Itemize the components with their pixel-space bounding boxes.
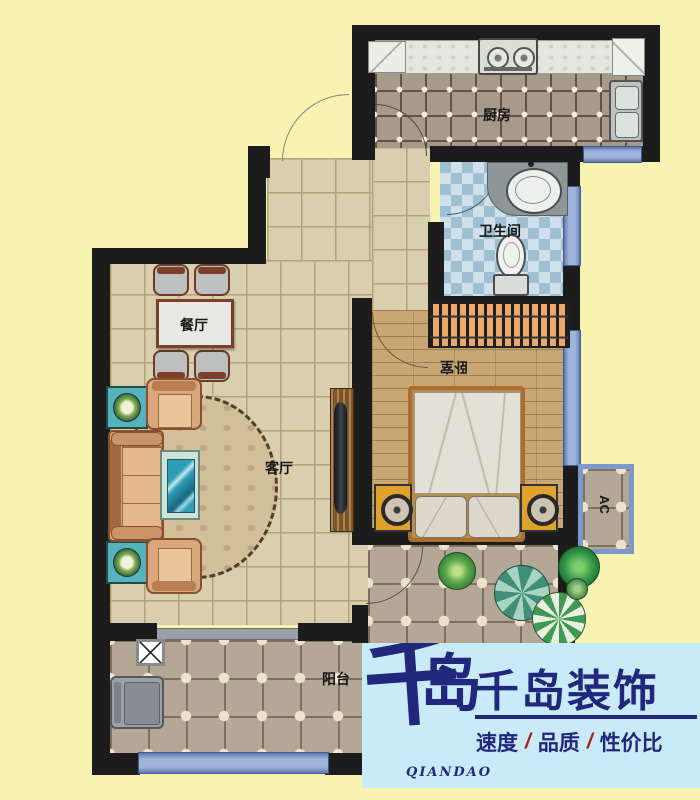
- bathroom-sink-basin: [506, 168, 562, 214]
- entry-door-arc: [282, 94, 349, 161]
- stove-control-panel: [484, 67, 532, 71]
- logo-rule: [475, 715, 697, 719]
- kitchen-stove: [478, 38, 538, 75]
- wall-balcony-bottom-left: [92, 753, 140, 775]
- coffee-table-glass: [167, 459, 195, 513]
- pillow-left: [415, 496, 467, 538]
- wardrobe: [428, 302, 570, 348]
- logo-tagline: 速度 / 品质 / 性价比: [476, 727, 663, 757]
- armchair-back: [152, 381, 196, 391]
- armchair-cushion: [158, 548, 192, 582]
- tagline-slash-icon: /: [525, 730, 531, 754]
- stove-burner-right: [513, 47, 535, 69]
- coffee-table: [160, 450, 200, 520]
- sink-basin-top: [615, 86, 639, 110]
- dining-chair: [194, 264, 230, 296]
- kitchen-label: 厨房: [483, 105, 511, 125]
- company-logo: 千 岛 QIANDAO 千岛装饰 速度 / 品质 / 性价比: [362, 643, 700, 788]
- hallway-floor: [372, 147, 430, 310]
- dining-chair: [153, 264, 189, 296]
- sofa-back: [110, 438, 121, 534]
- kitchen-cutting-board: [368, 41, 406, 73]
- nightstand-lamp: [381, 494, 413, 526]
- nightstand-left: [374, 484, 412, 532]
- washing-machine-panel: [114, 682, 121, 723]
- kitchen-right-counter: [612, 38, 645, 76]
- wall-kitchen-right: [643, 25, 660, 162]
- bathroom-vanity: [487, 162, 568, 216]
- dining-table: 餐厅: [156, 299, 234, 348]
- sofa-cushions: [122, 446, 162, 530]
- bathroom-label: 卫生间: [479, 221, 521, 241]
- plant: [532, 592, 586, 646]
- floor-plan: AC 餐厅: [0, 0, 700, 800]
- potted-plant: [113, 548, 141, 577]
- armchair-top: [146, 378, 202, 430]
- bed: [408, 386, 525, 542]
- washing-machine: [110, 676, 164, 729]
- balcony-window: [138, 752, 329, 774]
- plant: [438, 552, 476, 590]
- wall-living-bedroom-divider: [352, 298, 372, 530]
- kitchen-sink: [609, 80, 643, 142]
- armchair-back: [152, 581, 196, 591]
- sofa-armrest-top: [111, 432, 163, 446]
- toilet-tank: [493, 274, 529, 296]
- toilet: [493, 234, 531, 298]
- plant-stand-bottom: [106, 541, 148, 584]
- stove-burner-left: [487, 47, 509, 69]
- tagline-speed: 速度: [476, 727, 518, 757]
- balcony-slider-threshold: [155, 628, 302, 640]
- entry-hall-floor: [267, 158, 372, 262]
- plant: [566, 578, 588, 600]
- sink-basin-bottom: [615, 112, 639, 138]
- living-room-label: 客厅: [265, 458, 293, 478]
- potted-plant: [113, 393, 141, 422]
- nightstand-lamp: [527, 494, 559, 526]
- sofa: [108, 430, 164, 542]
- bathroom-sink-inner: [515, 176, 551, 204]
- wall-kitchen-bottom-corner: [640, 146, 660, 162]
- wall-south-left: [352, 605, 368, 643]
- ac-platform-label: AC: [597, 495, 612, 514]
- tagline-value: 性价比: [600, 727, 663, 757]
- logo-romanized: QIANDAO: [406, 765, 492, 780]
- armchair-bottom: [146, 538, 202, 594]
- armchair-cushion: [158, 394, 192, 428]
- toilet-bowl-inner: [503, 242, 520, 268]
- nightstand-right: [520, 484, 558, 532]
- tv: [334, 402, 347, 514]
- floor-drain: [136, 639, 165, 666]
- tagline-slash-icon: /: [587, 730, 593, 754]
- ac-platform: AC: [578, 464, 634, 554]
- bathroom-faucet: [528, 161, 534, 167]
- bedroom-label: 卧室: [440, 357, 468, 377]
- pillow-right: [468, 496, 520, 538]
- wall-bathroom-left: [428, 222, 444, 298]
- bedroom-window: [563, 330, 581, 466]
- wall-balcony-bottom-right: [325, 753, 362, 775]
- logo-company-name: 千岛装饰: [475, 655, 659, 719]
- dining-room-label: 餐厅: [180, 315, 208, 335]
- plant-stand-top: [106, 386, 148, 429]
- logo-calligraphy-char2: 岛: [420, 653, 482, 715]
- kitchen-window: [583, 146, 642, 163]
- wall-dining-top: [92, 248, 266, 264]
- mattress: [414, 392, 521, 494]
- tagline-quality: 品质: [538, 727, 580, 757]
- wall-entry-vertical: [248, 146, 266, 264]
- washing-machine-door: [124, 682, 160, 725]
- dining-chair: [194, 350, 230, 382]
- balcony-label: 阳台: [322, 669, 350, 689]
- wall-kitchen-bottom: [430, 146, 583, 162]
